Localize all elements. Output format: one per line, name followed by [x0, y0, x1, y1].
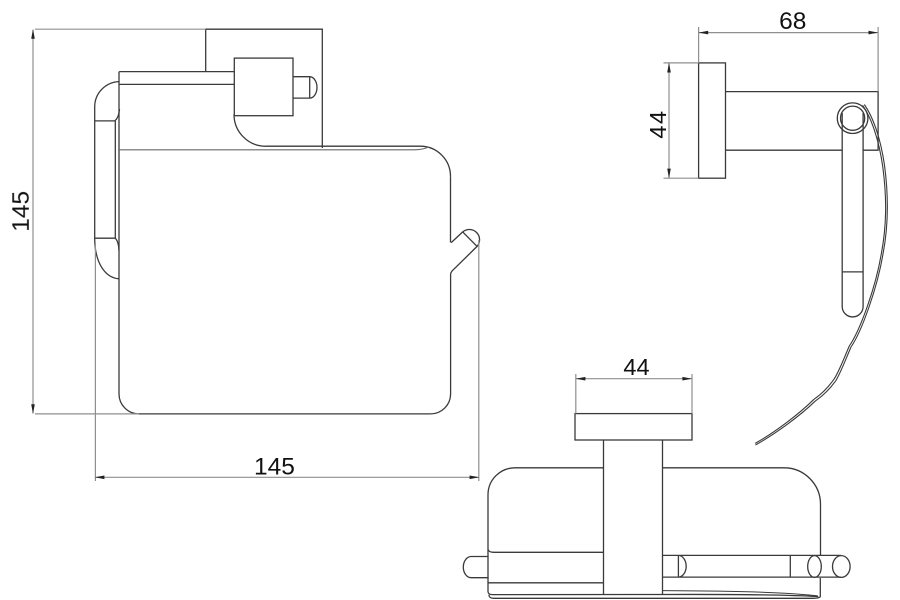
svg-text:44: 44 — [623, 354, 649, 380]
svg-text:145: 145 — [254, 454, 295, 481]
svg-text:68: 68 — [779, 8, 806, 35]
svg-text:145: 145 — [8, 191, 35, 232]
svg-text:44: 44 — [645, 109, 671, 138]
